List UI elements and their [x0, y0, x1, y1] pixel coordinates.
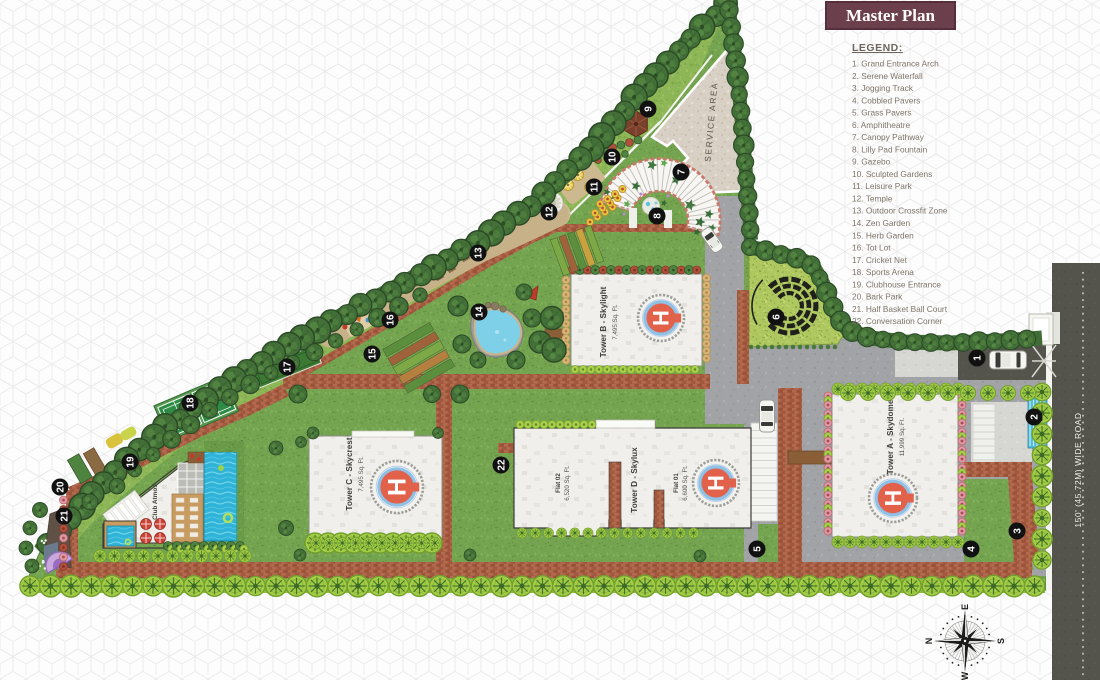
svg-text:7,495 Sq. Ft.: 7,495 Sq. Ft.	[358, 456, 365, 492]
svg-text:E: E	[960, 604, 970, 610]
svg-text:5: 5	[753, 546, 764, 552]
svg-text:1. Grand Entrance Arch: 1. Grand Entrance Arch	[852, 59, 939, 69]
svg-text:6: 6	[772, 314, 783, 320]
svg-text:S: S	[996, 638, 1006, 644]
svg-text:4: 4	[967, 546, 978, 552]
svg-text:8: 8	[653, 213, 664, 219]
svg-text:Tower D - Skylux: Tower D - Skylux	[630, 447, 639, 513]
svg-text:19: 19	[126, 456, 137, 468]
svg-text:21. Half Basket Ball Court: 21. Half Basket Ball Court	[852, 304, 948, 314]
svg-text:H: H	[704, 475, 729, 491]
svg-text:H: H	[384, 478, 412, 496]
svg-text:Flat 01: Flat 01	[673, 473, 680, 493]
svg-text:6,520 Sq. Ft.: 6,520 Sq. Ft.	[564, 465, 571, 501]
svg-text:Master Plan: Master Plan	[846, 6, 935, 25]
svg-text:7,495 Sq. Ft.: 7,495 Sq. Ft.	[612, 304, 619, 340]
svg-text:16. Tot Lot: 16. Tot Lot	[852, 243, 891, 253]
svg-text:19. Clubhouse Entrance: 19. Clubhouse Entrance	[852, 279, 941, 289]
svg-text:H: H	[880, 490, 906, 507]
svg-text:11: 11	[590, 181, 601, 192]
svg-text:6. Amphitheatre: 6. Amphitheatre	[852, 120, 911, 130]
svg-text:1: 1	[973, 355, 984, 361]
svg-text:13: 13	[474, 247, 485, 259]
svg-text:4. Cobbled Pavers: 4. Cobbled Pavers	[852, 95, 920, 105]
svg-text:15. Herb Garden: 15. Herb Garden	[852, 230, 914, 240]
svg-text:9. Gazebo: 9. Gazebo	[852, 157, 891, 167]
svg-text:15: 15	[368, 348, 379, 360]
svg-text:9: 9	[644, 106, 655, 112]
svg-text:Tower A - Skydome: Tower A - Skydome	[886, 399, 895, 474]
svg-text:2: 2	[1030, 414, 1041, 420]
svg-text:14. Zen Garden: 14. Zen Garden	[852, 218, 911, 228]
svg-text:Club Atmos: Club Atmos	[152, 484, 159, 520]
svg-text:150' (45.72M) WIDE ROAD: 150' (45.72M) WIDE ROAD	[1073, 412, 1083, 527]
svg-text:22: 22	[497, 459, 508, 471]
svg-text:3: 3	[1013, 528, 1024, 534]
svg-text:3. Jogging Track: 3. Jogging Track	[852, 83, 914, 93]
svg-text:H: H	[649, 310, 674, 326]
svg-text:12. Temple: 12. Temple	[852, 194, 893, 204]
svg-text:11. Leisure Park: 11. Leisure Park	[852, 181, 913, 191]
svg-text:Flat 02: Flat 02	[555, 473, 562, 493]
svg-text:7: 7	[677, 169, 688, 175]
svg-text:5. Grass Pavers: 5. Grass Pavers	[852, 108, 911, 118]
svg-text:20. Bark Park: 20. Bark Park	[852, 292, 903, 302]
svg-text:10: 10	[608, 151, 619, 163]
svg-text:N: N	[924, 638, 934, 645]
svg-text:17. Cricket Net: 17. Cricket Net	[852, 255, 908, 265]
svg-text:11,999 Sq. Ft.: 11,999 Sq. Ft.	[899, 418, 906, 457]
svg-text:22. Conversation Corner: 22. Conversation Corner	[852, 316, 943, 326]
svg-text:8. Lilly Pad Fountain: 8. Lilly Pad Fountain	[852, 144, 928, 154]
svg-text:21: 21	[60, 510, 71, 522]
svg-text:18: 18	[186, 397, 197, 409]
svg-text:16: 16	[386, 314, 397, 326]
svg-text:Tower B - Skylight: Tower B - Skylight	[599, 286, 608, 357]
svg-text:13. Outdoor Crossfit Zone: 13. Outdoor Crossfit Zone	[852, 206, 948, 216]
svg-text:12: 12	[545, 206, 556, 218]
svg-text:17: 17	[283, 361, 294, 373]
svg-text:14: 14	[475, 306, 486, 318]
svg-text:W: W	[960, 671, 970, 680]
svg-text:7. Canopy Pathway: 7. Canopy Pathway	[852, 132, 925, 142]
svg-text:6,600 Sq. Ft.: 6,600 Sq. Ft.	[682, 465, 689, 501]
svg-text:20: 20	[56, 481, 67, 493]
svg-text:LEGEND:: LEGEND:	[852, 42, 903, 54]
svg-text:2. Serene Waterfall: 2. Serene Waterfall	[852, 71, 923, 81]
svg-text:18. Sports Arena: 18. Sports Arena	[852, 267, 914, 277]
svg-text:Tower C - Skycrest: Tower C - Skycrest	[345, 437, 354, 510]
svg-text:10. Sculpted Gardens: 10. Sculpted Gardens	[852, 169, 932, 179]
